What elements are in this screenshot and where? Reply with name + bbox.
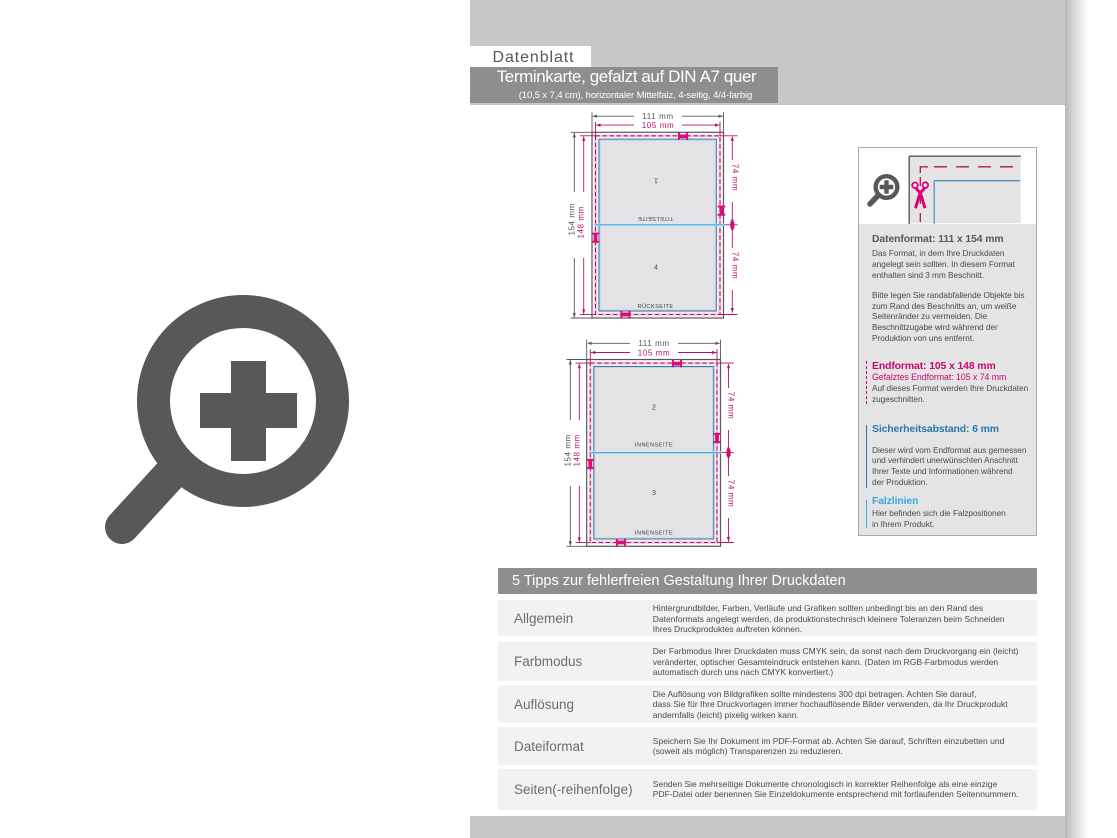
svg-text:154 mm: 154 mm [567, 203, 576, 236]
svg-text:74 mm: 74 mm [730, 164, 739, 191]
svg-text:105 mm: 105 mm [638, 348, 671, 357]
svg-text:111 mm: 111 mm [642, 112, 673, 121]
svg-text:105 mm: 105 mm [642, 121, 675, 130]
svg-text:111 mm: 111 mm [638, 339, 669, 348]
svg-text:1: 1 [654, 177, 658, 184]
svg-text:3: 3 [652, 490, 656, 497]
svg-text:148 mm: 148 mm [572, 434, 581, 467]
svg-text:TITELSEITE: TITELSEITE [638, 215, 674, 221]
svg-text:INNENSEITE: INNENSEITE [635, 531, 673, 537]
svg-text:2: 2 [652, 405, 656, 412]
svg-text:INNENSEITE: INNENSEITE [635, 443, 673, 449]
svg-text:4: 4 [654, 265, 658, 272]
svg-text:74 mm: 74 mm [727, 480, 736, 507]
svg-text:74 mm: 74 mm [727, 392, 736, 419]
svg-text:RÜCKSEITE: RÜCKSEITE [637, 303, 673, 310]
svg-text:148 mm: 148 mm [577, 206, 586, 239]
svg-text:74 mm: 74 mm [730, 252, 739, 279]
svg-text:154 mm: 154 mm [563, 434, 572, 467]
